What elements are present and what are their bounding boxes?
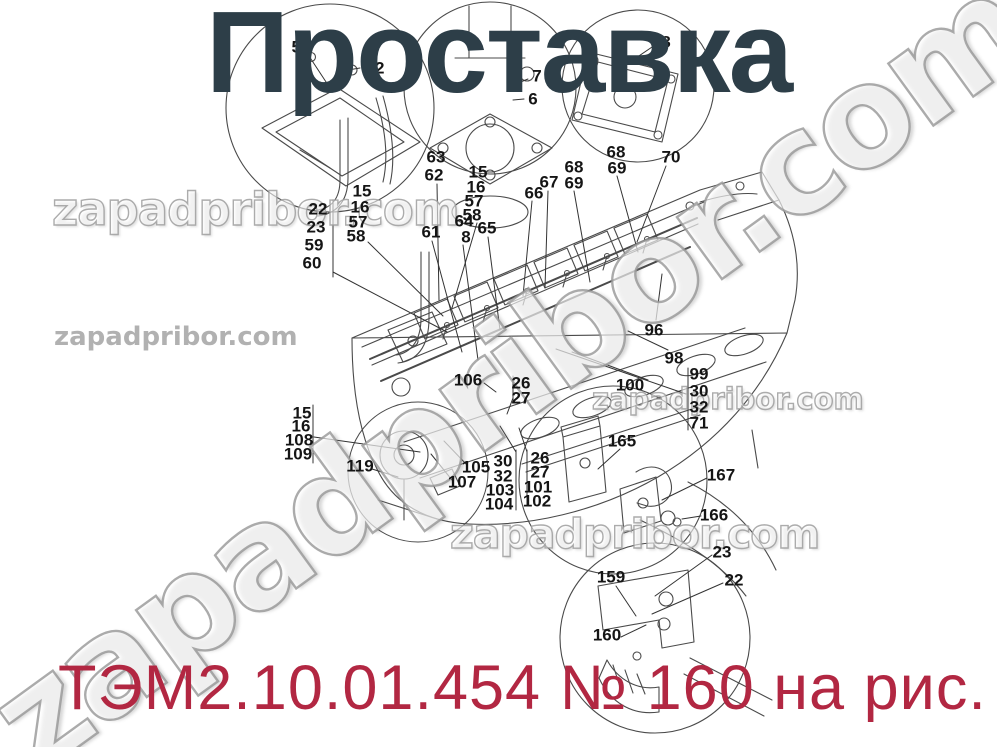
caption-text: ТЭМ2.10.01.454 № 160 на рис. (58, 652, 987, 724)
page: zapadpribor.com zapadpribor.com zapadpri… (0, 0, 997, 747)
engine-parts-diagram (0, 0, 997, 747)
